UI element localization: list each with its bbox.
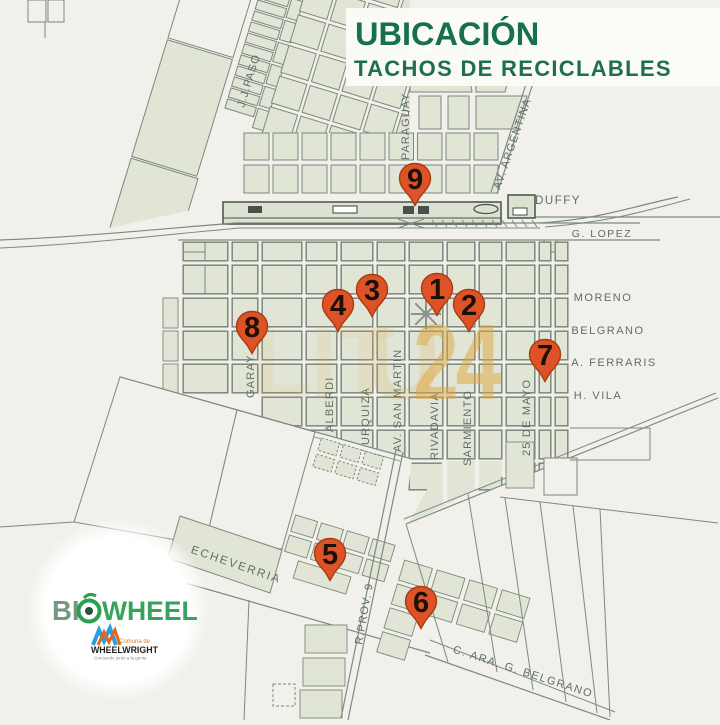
- svg-text:DUFFY: DUFFY: [535, 195, 581, 207]
- svg-text:WHEELWRIGHT: WHEELWRIGHT: [91, 645, 159, 655]
- svg-text:4: 4: [330, 290, 346, 322]
- svg-text:PARAGUAY: PARAGUAY: [400, 93, 412, 161]
- svg-text:BI: BI: [52, 595, 80, 626]
- svg-text:6: 6: [413, 587, 429, 619]
- svg-text:1: 1: [429, 274, 445, 306]
- svg-text:MORENO: MORENO: [574, 292, 633, 304]
- svg-text:UBICACIÓN: UBICACIÓN: [355, 15, 539, 52]
- svg-text:2: 2: [461, 290, 477, 322]
- svg-text:3: 3: [364, 275, 380, 307]
- svg-text:A. FERRARIS: A. FERRARIS: [571, 357, 657, 369]
- svg-text:H. VILA: H. VILA: [574, 390, 622, 402]
- svg-text:7: 7: [537, 340, 553, 372]
- svg-text:BELGRANO: BELGRANO: [571, 325, 644, 337]
- svg-text:9: 9: [407, 164, 423, 196]
- svg-text:5: 5: [322, 539, 338, 571]
- svg-text:G. LOPEZ: G. LOPEZ: [572, 228, 632, 240]
- svg-text:WHEEL: WHEEL: [102, 596, 198, 626]
- svg-text:Creciendo junto a la gente: Creciendo junto a la gente: [94, 656, 147, 661]
- svg-text:25 DE MAYO: 25 DE MAYO: [521, 379, 533, 456]
- svg-text:8: 8: [244, 312, 260, 344]
- svg-text:TACHOS DE RECICLABLES: TACHOS DE RECICLABLES: [354, 56, 672, 81]
